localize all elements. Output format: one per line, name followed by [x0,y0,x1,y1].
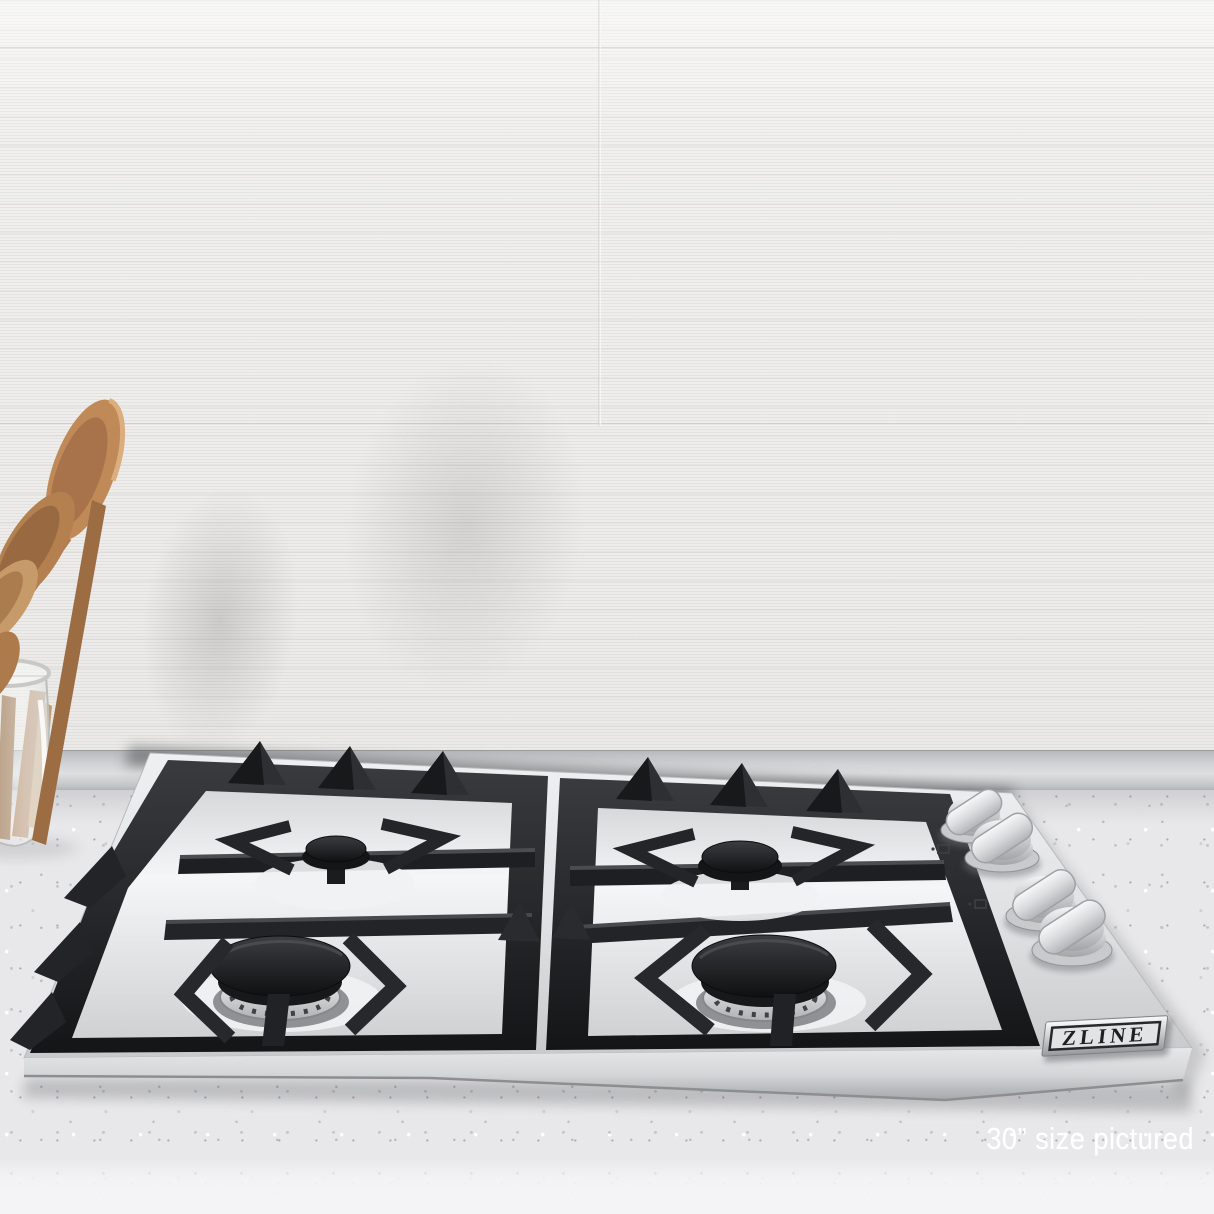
brand-badge: ZLINE [1041,1015,1173,1062]
size-caption: 30” size pictured [986,1121,1194,1157]
burner-rear-left-cap [306,836,366,862]
product-photo: ZLINE 30” size pictured [0,0,1214,1214]
badge-label: ZLINE [1061,1022,1149,1050]
utensil-jar-group [0,383,138,859]
grate-left [30,760,548,1053]
cooktop: ZLINE [10,741,1206,1112]
burner-front-right-cap [692,935,836,997]
burner-front-right-stub [770,994,796,1046]
scene-art: ZLINE [0,0,1214,1214]
burner-rear-right-cap [702,841,778,873]
